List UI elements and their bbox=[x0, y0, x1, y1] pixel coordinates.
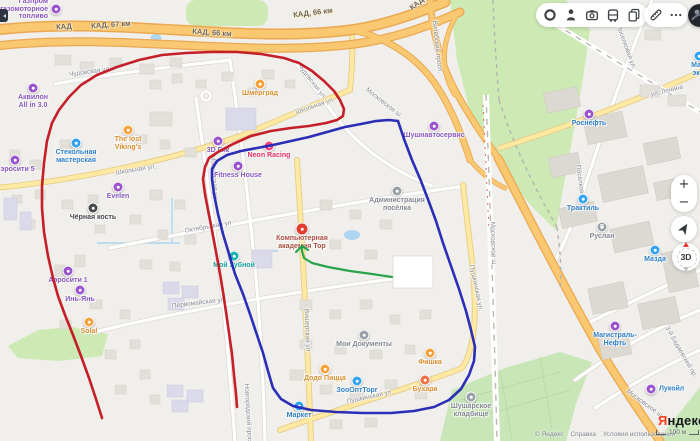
help-link[interactable]: Справка bbox=[570, 431, 596, 438]
panel-toggle-button[interactable] bbox=[0, 9, 8, 22]
red-route-drawing bbox=[42, 52, 344, 418]
scale-bar: 100 м bbox=[656, 429, 699, 436]
camera-icon bbox=[584, 7, 600, 23]
green-arrow-drawing bbox=[302, 246, 392, 277]
compass-north-needle bbox=[683, 242, 689, 247]
zoom-control: + − bbox=[671, 175, 697, 212]
more-icon bbox=[668, 7, 684, 23]
traffic-icon bbox=[542, 7, 558, 23]
drawing-annotations bbox=[0, 0, 700, 441]
locate-me-button[interactable] bbox=[671, 216, 697, 242]
scale-line-right bbox=[689, 430, 699, 435]
compass-south-needle bbox=[683, 267, 689, 272]
bookmarks-button[interactable] bbox=[625, 6, 643, 24]
map-layers-toolbar bbox=[536, 3, 648, 27]
copyright-text: © Яндекс bbox=[535, 431, 563, 438]
zoom-out-button[interactable]: − bbox=[671, 196, 697, 209]
ruler-icon bbox=[648, 7, 664, 23]
more-button[interactable] bbox=[667, 6, 685, 24]
yandex-logo-ya: Я bbox=[658, 413, 668, 428]
scale-line-left bbox=[656, 430, 666, 435]
yandex-logo-rest: ндекс bbox=[668, 413, 700, 428]
attribution-bar: © Яндекс Справка Условия использования bbox=[535, 431, 675, 438]
panoramas-button[interactable] bbox=[562, 6, 580, 24]
traffic-button[interactable] bbox=[541, 6, 559, 24]
compass-ring bbox=[677, 248, 697, 268]
blue-route-drawing bbox=[212, 120, 475, 413]
ruler-button[interactable] bbox=[647, 6, 665, 24]
bookmarks-icon bbox=[626, 7, 642, 23]
transport-button[interactable] bbox=[604, 6, 622, 24]
mirrors-button[interactable] bbox=[583, 6, 601, 24]
scale-label: 100 м bbox=[669, 429, 686, 436]
location-arrow-icon bbox=[677, 222, 691, 236]
yandex-logo[interactable]: Яндекс bbox=[658, 414, 700, 428]
tools-toolbar bbox=[644, 3, 688, 27]
chevron-left-icon bbox=[3, 14, 6, 18]
compass-3d-button[interactable]: 3D bbox=[672, 243, 700, 271]
zoom-in-button[interactable]: + bbox=[671, 178, 697, 191]
yandex-maps-app: Чудовская ул.Чудовская ул.Школьная ул.Шк… bbox=[0, 0, 700, 441]
bus-icon bbox=[605, 7, 621, 23]
panoramas-icon bbox=[563, 7, 579, 23]
